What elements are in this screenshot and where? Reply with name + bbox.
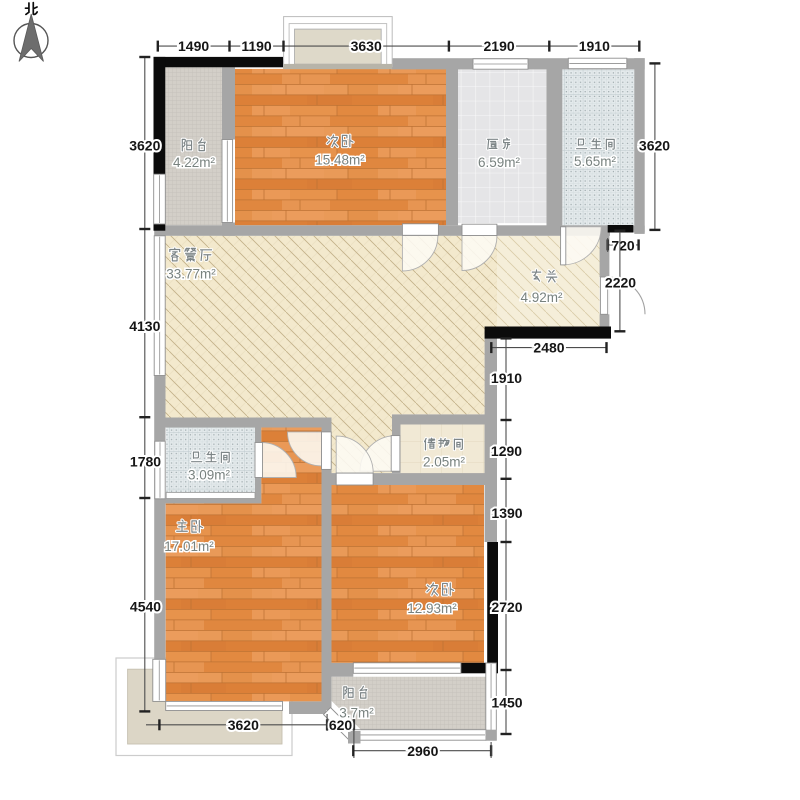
svg-text:720: 720 bbox=[611, 238, 635, 254]
svg-text:33.77m²: 33.77m² bbox=[166, 267, 216, 282]
svg-text:4130: 4130 bbox=[129, 318, 160, 334]
svg-text:12.93m²: 12.93m² bbox=[407, 601, 457, 616]
svg-text:1450: 1450 bbox=[491, 695, 522, 711]
svg-text:2960: 2960 bbox=[407, 743, 438, 759]
svg-text:4540: 4540 bbox=[130, 599, 161, 615]
svg-text:2190: 2190 bbox=[484, 38, 515, 54]
svg-text:3620: 3620 bbox=[228, 717, 259, 733]
svg-text:2480: 2480 bbox=[533, 340, 564, 356]
svg-text:3630: 3630 bbox=[351, 38, 382, 54]
svg-text:2.05m²: 2.05m² bbox=[423, 455, 466, 470]
svg-text:1490: 1490 bbox=[178, 38, 209, 54]
svg-text:2220: 2220 bbox=[605, 275, 636, 291]
svg-text:1290: 1290 bbox=[491, 443, 522, 459]
svg-text:3620: 3620 bbox=[129, 138, 160, 154]
svg-text:3.7m²: 3.7m² bbox=[339, 706, 374, 721]
svg-text:15.48m²: 15.48m² bbox=[315, 153, 365, 168]
svg-text:5.65m²: 5.65m² bbox=[574, 154, 617, 169]
svg-text:2720: 2720 bbox=[491, 599, 522, 615]
svg-text:3.09m²: 3.09m² bbox=[188, 468, 231, 483]
svg-text:17.01m²: 17.01m² bbox=[164, 539, 214, 554]
svg-text:4.22m²: 4.22m² bbox=[173, 155, 216, 170]
svg-text:4.92m²: 4.92m² bbox=[520, 290, 563, 305]
svg-text:6.59m²: 6.59m² bbox=[478, 155, 521, 170]
svg-text:1190: 1190 bbox=[241, 38, 272, 54]
svg-text:3620: 3620 bbox=[639, 138, 670, 154]
svg-text:1910: 1910 bbox=[491, 370, 522, 386]
svg-text:1780: 1780 bbox=[130, 454, 161, 470]
svg-text:1910: 1910 bbox=[579, 38, 610, 54]
svg-text:1390: 1390 bbox=[491, 505, 522, 521]
